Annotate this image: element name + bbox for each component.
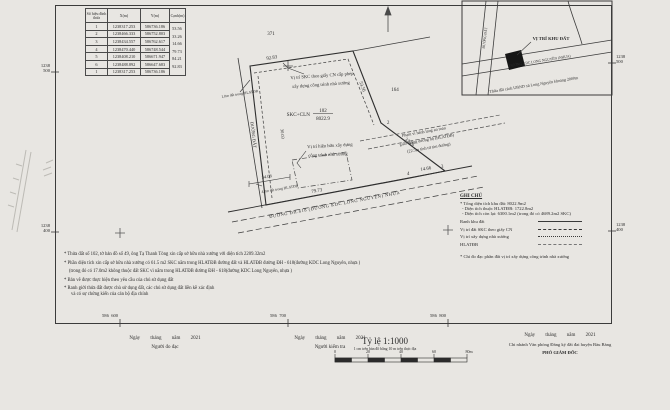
legend-item-skc: Vị trí đất SKC theo giấy CN bbox=[460, 226, 610, 234]
margin-stamp bbox=[8, 150, 53, 232]
office-date: Ngày tháng năm 2021 bbox=[465, 333, 655, 339]
legend-item-label: Ranh khu đất bbox=[460, 219, 538, 224]
dim-bottom: 79.73 bbox=[311, 188, 323, 195]
x-coord: 1238317.253 bbox=[108, 68, 141, 76]
dim-top: 92.83 bbox=[266, 55, 278, 62]
road-dh618-label: ĐƯỜNG ĐH.618 (ĐƯỜNG KDC LONG NGUYÊN) NHỰ… bbox=[269, 190, 401, 219]
office-name: Chi nhánh Văn phòng Đăng ký đất đai huyệ… bbox=[465, 342, 655, 347]
grid-y-value2: 800 bbox=[439, 313, 446, 318]
y-coord: 586736.186 bbox=[141, 68, 170, 76]
dim-inner-bottom: 34.08 bbox=[261, 173, 273, 180]
legend-title: GHI CHÚ bbox=[460, 194, 610, 199]
grid-label-bottom-800: 586 800 bbox=[430, 313, 446, 318]
table-header-row: Số hiệu đỉnh thửa X(m) Y(m) Cạnh(m) bbox=[86, 9, 186, 23]
vertex-id: 3 bbox=[86, 38, 108, 46]
scale-bar bbox=[335, 354, 467, 362]
y-coord: 586762.617 bbox=[141, 38, 170, 46]
skc-dashed-boundary bbox=[254, 59, 374, 198]
location-map-parcel bbox=[505, 50, 525, 70]
grid-x-value2: 500 bbox=[616, 59, 640, 64]
grid-label-left-bottom: 1238 400 bbox=[30, 223, 50, 234]
parcel-area: 8022.9 bbox=[316, 117, 330, 122]
legend-item-label: Vị trí xây dựng nhà xưởng bbox=[460, 234, 538, 239]
x-coord: 1238408.210 bbox=[108, 53, 141, 61]
neighbor-boundary bbox=[353, 37, 430, 51]
note-4b: và có sự chứng kiến của cán bộ địa chính bbox=[71, 292, 450, 297]
vertex-id: 6 bbox=[86, 60, 108, 68]
vertex-id: 1 bbox=[86, 23, 108, 31]
neighbor-parcel-164: 164 bbox=[391, 88, 399, 93]
dim-bottom-right: 14.66 bbox=[420, 166, 432, 173]
scanned-cadastral-document: { "frame": { "grid_left_top": {"a": "123… bbox=[0, 0, 670, 410]
edge-length: 84.21 bbox=[169, 56, 185, 61]
legend-remaining-area: - Diện tích còn lại: 6300.1m2 (trong đó … bbox=[462, 211, 610, 216]
map-scale-subtitle: 1 cm trên bản đồ bằng 10 m trên thực địa bbox=[320, 347, 450, 351]
grid-x-value2: 500 bbox=[30, 68, 50, 73]
neighbor-parcel-371: 371 bbox=[267, 32, 275, 37]
edge-length: 33.26 bbox=[169, 34, 185, 39]
existing-annotation-line2: công trình nhà xưởng bbox=[308, 151, 348, 158]
location-map-caption: Thửa đất cách UBND xã Long Nguyên khoảng… bbox=[489, 75, 579, 94]
grid-label-right-bottom: 1238 400 bbox=[616, 222, 640, 233]
table-row: 11238317.253586736.186 bbox=[86, 68, 186, 76]
dirt-road-edge bbox=[238, 58, 262, 208]
north-arrow-icon bbox=[385, 7, 391, 32]
note-2: * Phần diện tích xin cấp sở hữu nhà xưởn… bbox=[64, 261, 450, 266]
grid-y-value: 586 bbox=[270, 313, 277, 318]
office-signer-role: PHÓ GIÁM ĐỐC bbox=[465, 350, 655, 355]
grid-label-bottom-700: 586 700 bbox=[270, 313, 286, 318]
vertex-id: 4 bbox=[86, 45, 108, 53]
col-header-x: X(m) bbox=[108, 9, 141, 23]
col-header-edge: Cạnh(m) bbox=[170, 9, 186, 23]
edge-length: 53.56 bbox=[169, 26, 185, 31]
grid-y-value2: 600 bbox=[111, 313, 118, 318]
y-coord: 586752.803 bbox=[141, 30, 170, 38]
solid-line-sample bbox=[538, 221, 582, 222]
dashdot-line-sample bbox=[538, 236, 582, 237]
existing-annotation-line1: Vị trí hiện hữu xây dựng bbox=[307, 142, 353, 149]
dim-right-upper: 53.56 bbox=[357, 81, 366, 93]
note-2b: (trong đó có 17.0m2 không thuộc đất SKC … bbox=[69, 269, 450, 274]
edge-length: 92.83 bbox=[169, 64, 185, 69]
land-type: SKC+CLN bbox=[287, 112, 311, 118]
dim-inner-left: 30.03 bbox=[279, 129, 285, 140]
vertex-id: 2 bbox=[86, 30, 108, 38]
col-header-vertex: Số hiệu đỉnh thửa bbox=[86, 9, 108, 23]
y-coord: 586736.186 bbox=[141, 23, 170, 31]
edge-length: 79.73 bbox=[169, 49, 185, 54]
legend-item-boundary: Ranh khu đất bbox=[460, 218, 610, 226]
skc-annotation-line2: xây dựng công trình nhà xưởng bbox=[292, 80, 351, 89]
grid-label-left-top: 1238 500 bbox=[30, 63, 50, 74]
legend-item-label: HLATĐB bbox=[460, 242, 538, 247]
x-coord: 1238470.440 bbox=[108, 45, 141, 53]
corridor-line-sample bbox=[538, 244, 582, 245]
map-scale-title: Tỷ lệ 1:1000 bbox=[320, 336, 450, 346]
grid-x-value2: 400 bbox=[30, 228, 50, 233]
parcel-area-label: SKC+CLN 102 8022.9 bbox=[287, 109, 333, 122]
strip-note-bottom: 4,0m đất trong HLATĐB bbox=[261, 184, 299, 195]
legend-box: GHI CHÚ * Tổng diện tích khu đất: 8022.9… bbox=[460, 194, 610, 259]
vertex-4: 4 bbox=[407, 172, 410, 177]
legend-item-label: Vị trí đất SKC theo giấy CN bbox=[460, 227, 538, 232]
note-1: * Thửa đất số 102, tờ bản đồ số 49, ông … bbox=[64, 252, 450, 257]
vertex-id: 1 bbox=[86, 68, 108, 76]
grid-y-value: 586 bbox=[102, 313, 109, 318]
y-coord: 586671.947 bbox=[141, 53, 170, 61]
x-coord: 1238434.557 bbox=[108, 38, 141, 46]
y-coord: 586748.544 bbox=[141, 45, 170, 53]
legend-item-hlatdb: HLATĐB bbox=[460, 241, 610, 249]
y-coord: 586647.683 bbox=[141, 60, 170, 68]
note-4: * Ranh giới thửa đất được chủ sử dụng đấ… bbox=[64, 286, 450, 291]
legend-item-factory: Vị trí xây dựng nhà xưởng bbox=[460, 233, 610, 241]
legend-footnote: * Chỉ đo đạc phần đất vị trí xây dựng cô… bbox=[460, 254, 610, 259]
survey-notes: * Thửa đất số 102, tờ bản đồ số 49, ông … bbox=[64, 252, 450, 301]
x-coord: 1238488.892 bbox=[108, 60, 141, 68]
surveyor-role: Người đo đạc bbox=[95, 345, 235, 351]
grid-y-value: 586 bbox=[430, 313, 437, 318]
vertex-2: 2 bbox=[387, 121, 390, 126]
grid-label-right-top: 1238 500 bbox=[616, 54, 640, 65]
grid-label-bottom-600: 586 600 bbox=[102, 313, 118, 318]
col-header-y: Y(m) bbox=[141, 9, 170, 23]
vertex-id: 5 bbox=[86, 53, 108, 61]
x-coord: 1238466.333 bbox=[108, 30, 141, 38]
note-3: * Bản vẽ được thực hiện theo yêu cầu của… bbox=[64, 278, 450, 283]
grid-y-value2: 700 bbox=[279, 313, 286, 318]
dashed-line-sample bbox=[538, 229, 582, 230]
edge-length: 14.66 bbox=[169, 41, 185, 46]
location-map-title: VỊ TRÍ KHU ĐẤT bbox=[533, 36, 570, 41]
x-coord: 1238317.253 bbox=[108, 23, 141, 31]
grid-x-value2: 400 bbox=[616, 227, 640, 232]
surveyor-date: Ngày tháng năm 2021 bbox=[95, 336, 235, 342]
